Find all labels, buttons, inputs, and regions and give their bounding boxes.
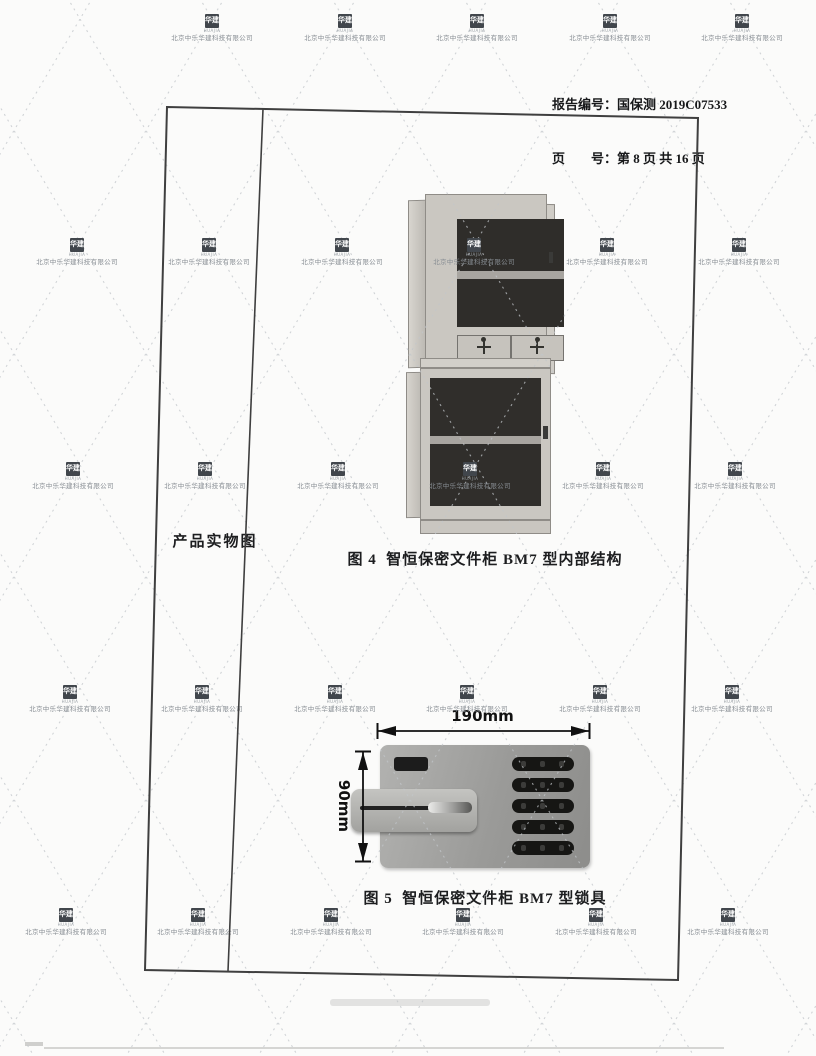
huajian-logo-icon: 华建	[589, 908, 603, 922]
cabinet-lower-shelf	[430, 436, 541, 444]
company-name: 北京中乐华建科技有限公司	[153, 930, 243, 937]
report-header: 报告编号：国保测 2019C07533 页 号：第 8 页 共 16 页	[552, 60, 727, 186]
lock-photo: 190mm 90mm	[320, 700, 640, 890]
huajian-logo-icon: 华建	[467, 238, 481, 252]
watermark-stamp: 华建HUAJIA北京中乐华建科技有限公司	[551, 904, 641, 936]
huajian-logo-icon: 华建	[191, 908, 205, 922]
company-name: 北京中乐华建科技有限公司	[167, 36, 257, 43]
arrowhead-left-icon	[378, 726, 396, 736]
company-name: 北京中乐华建科技有限公司	[32, 260, 122, 267]
watermark-stamp: 华建HUAJIA北京中乐华建科技有限公司	[293, 458, 383, 490]
cabinet-middle-ledge	[420, 358, 551, 368]
company-name: 北京中乐华建科技有限公司	[565, 36, 655, 43]
watermark-stamp: 华建HUAJIA北京中乐华建科技有限公司	[153, 904, 243, 936]
company-name: 北京中乐华建科技有限公司	[300, 36, 390, 43]
arrowhead-down-icon	[358, 843, 368, 861]
huajian-logo-icon: 华建	[205, 14, 219, 28]
watermark-stamp: 华建HUAJIA北京中乐华建科技有限公司	[25, 681, 115, 713]
huajian-logo-icon: 华建	[195, 685, 209, 699]
company-name: 北京中乐华建科技有限公司	[290, 707, 380, 714]
huajian-logo-icon: 华建	[456, 908, 470, 922]
watermark-stamp: 华建HUAJIA北京中乐华建科技有限公司	[697, 10, 787, 42]
report-number-line: 报告编号：国保测 2019C07533	[552, 96, 727, 114]
watermark-stamp: 华建HUAJIA北京中乐华建科技有限公司	[425, 458, 515, 490]
figure4-caption: 图 4 智恒保密文件柜 BM7 型内部结构	[270, 548, 700, 569]
huajian-logo-icon: 华建	[603, 14, 617, 28]
company-name: 北京中乐华建科技有限公司	[425, 484, 515, 491]
cabinet-open-door-left-top	[408, 200, 426, 368]
watermark-stamp: 华建HUAJIA北京中乐华建科技有限公司	[690, 458, 780, 490]
huajian-logo-icon: 华建	[600, 238, 614, 252]
huajian-logo-icon: 华建	[593, 685, 607, 699]
huajian-logo-icon: 华建	[732, 238, 746, 252]
watermark-stamp: 华建HUAJIA北京中乐华建科技有限公司	[290, 681, 380, 713]
company-name: 北京中乐华建科技有限公司	[418, 930, 508, 937]
huajian-logo-icon: 华建	[66, 462, 80, 476]
huajian-logo-icon: 华建	[460, 685, 474, 699]
company-name: 北京中乐华建科技有限公司	[697, 36, 787, 43]
scanned-report-page: { "header": { "report_line": "报告编号：国保测 2…	[0, 0, 816, 1056]
watermark-stamp: 华建HUAJIA北京中乐华建科技有限公司	[422, 681, 512, 713]
scan-edge-line	[44, 1047, 724, 1049]
watermark-stamp: 华建HUAJIA北京中乐华建科技有限公司	[687, 681, 777, 713]
page-number-line: 页 号：第 8 页 共 16 页	[552, 150, 727, 168]
company-name: 北京中乐华建科技有限公司	[25, 707, 115, 714]
huajian-logo-icon: 华建	[198, 462, 212, 476]
huajian-logo-icon: 华建	[725, 685, 739, 699]
company-name: 北京中乐华建科技有限公司	[157, 707, 247, 714]
company-name: 北京中乐华建科技有限公司	[683, 930, 773, 937]
watermark-stamp: 华建HUAJIA北京中乐华建科技有限公司	[286, 904, 376, 936]
huajian-logo-icon: 华建	[202, 238, 216, 252]
arrowhead-up-icon	[358, 752, 368, 770]
watermark-stamp: 华建HUAJIA北京中乐华建科技有限公司	[562, 234, 652, 266]
company-name: 北京中乐华建科技有限公司	[555, 707, 645, 714]
scan-edge-tick	[25, 1042, 43, 1046]
company-name: 北京中乐华建科技有限公司	[429, 260, 519, 267]
cabinet-door-handle-bottom	[543, 426, 548, 439]
watermark-stamp: 华建HUAJIA北京中乐华建科技有限公司	[21, 904, 111, 936]
watermark-stamp: 华建HUAJIA北京中乐华建科技有限公司	[300, 10, 390, 42]
huajian-logo-icon: 华建	[324, 908, 338, 922]
huajian-logo-icon: 华建	[721, 908, 735, 922]
huajian-logo-icon: 华建	[735, 14, 749, 28]
company-name: 北京中乐华建科技有限公司	[164, 260, 254, 267]
company-name: 北京中乐华建科技有限公司	[297, 260, 387, 267]
drawer-handle-icon	[483, 340, 485, 354]
huajian-logo-icon: 华建	[463, 462, 477, 476]
huajian-logo-icon: 华建	[328, 685, 342, 699]
dimension-arrows	[320, 700, 640, 890]
huajian-logo-icon: 华建	[331, 462, 345, 476]
watermark-stamp: 华建HUAJIA北京中乐华建科技有限公司	[683, 904, 773, 936]
company-name: 北京中乐华建科技有限公司	[558, 484, 648, 491]
watermark-stamp: 华建HUAJIA北京中乐华建科技有限公司	[297, 234, 387, 266]
watermark-stamp: 华建HUAJIA北京中乐华建科技有限公司	[555, 681, 645, 713]
product-photo-label: 产品实物图	[167, 530, 263, 551]
dimension-height-label: 90mm	[337, 776, 353, 836]
company-name: 北京中乐华建科技有限公司	[562, 260, 652, 267]
watermark-stamp: 华建HUAJIA北京中乐华建科技有限公司	[167, 10, 257, 42]
cabinet-door-handle-top	[549, 252, 553, 263]
company-name: 北京中乐华建科技有限公司	[432, 36, 522, 43]
huajian-logo-icon: 华建	[63, 685, 77, 699]
company-name: 北京中乐华建科技有限公司	[690, 484, 780, 491]
company-name: 北京中乐华建科技有限公司	[422, 707, 512, 714]
watermark-stamp: 华建HUAJIA北京中乐华建科技有限公司	[160, 458, 250, 490]
huajian-logo-icon: 华建	[338, 14, 352, 28]
huajian-logo-icon: 华建	[728, 462, 742, 476]
watermark-stamp: 华建HUAJIA北京中乐华建科技有限公司	[157, 681, 247, 713]
watermark-stamp: 华建HUAJIA北京中乐华建科技有限公司	[558, 458, 648, 490]
company-name: 北京中乐华建科技有限公司	[694, 260, 784, 267]
company-name: 北京中乐华建科技有限公司	[687, 707, 777, 714]
cabinet-base	[420, 520, 551, 534]
huajian-logo-icon: 华建	[596, 462, 610, 476]
arrowhead-right-icon	[571, 726, 589, 736]
watermark-stamp: 华建HUAJIA北京中乐华建科技有限公司	[565, 10, 655, 42]
company-name: 北京中乐华建科技有限公司	[293, 484, 383, 491]
drawer-handle-icon	[536, 340, 538, 354]
watermark-stamp: 华建HUAJIA北京中乐华建科技有限公司	[418, 904, 508, 936]
watermark-stamp: 华建HUAJIA北京中乐华建科技有限公司	[694, 234, 784, 266]
huajian-logo-icon: 华建	[59, 908, 73, 922]
huajian-logo-icon: 华建	[470, 14, 484, 28]
watermark-stamp: 华建HUAJIA北京中乐华建科技有限公司	[429, 234, 519, 266]
company-name: 北京中乐华建科技有限公司	[28, 484, 118, 491]
company-name: 北京中乐华建科技有限公司	[286, 930, 376, 937]
huajian-logo-icon: 华建	[70, 238, 84, 252]
huajian-logo-icon: 华建	[335, 238, 349, 252]
watermark-stamp: 华建HUAJIA北京中乐华建科技有限公司	[164, 234, 254, 266]
company-name: 北京中乐华建科技有限公司	[160, 484, 250, 491]
cabinet-upper-unit	[425, 194, 547, 364]
company-name: 北京中乐华建科技有限公司	[21, 930, 111, 937]
company-name: 北京中乐华建科技有限公司	[551, 930, 641, 937]
cabinet-upper-shelf	[457, 271, 564, 279]
watermark-stamp: 华建HUAJIA北京中乐华建科技有限公司	[32, 234, 122, 266]
watermark-stamp: 华建HUAJIA北京中乐华建科技有限公司	[432, 10, 522, 42]
watermark-stamp: 华建HUAJIA北京中乐华建科技有限公司	[28, 458, 118, 490]
scan-smudge	[330, 999, 490, 1006]
